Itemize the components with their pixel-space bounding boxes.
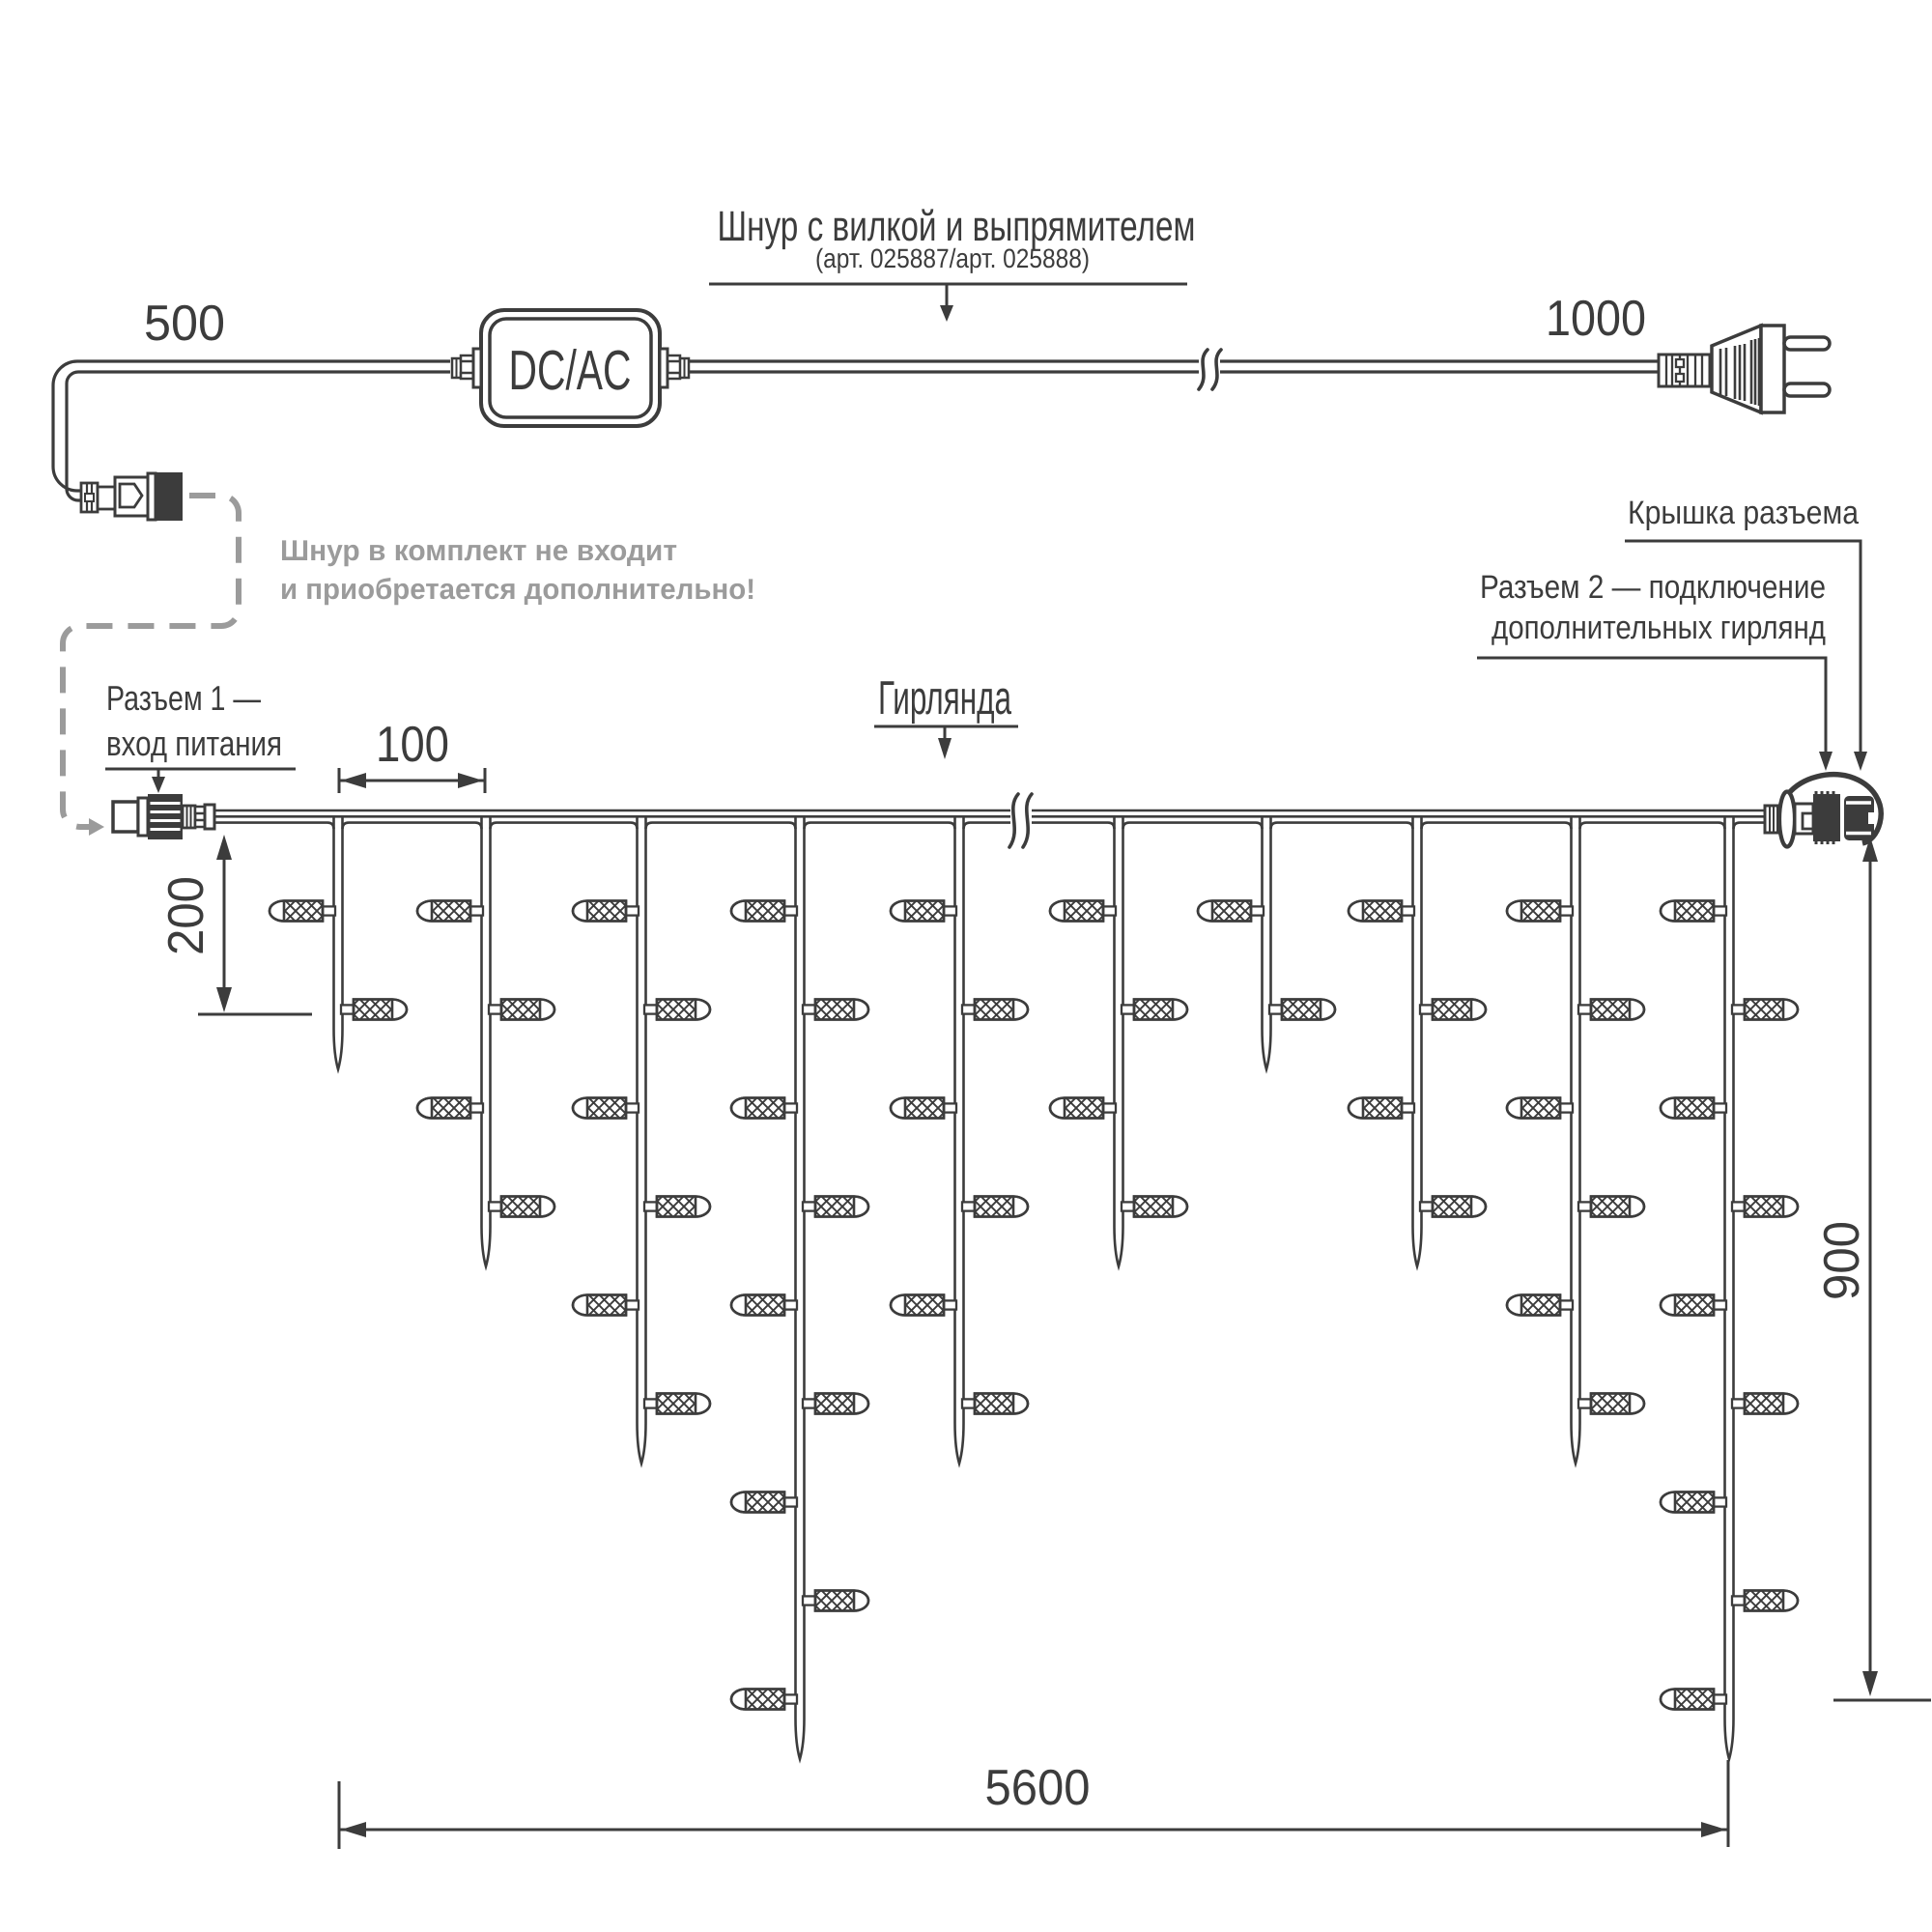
svg-text:200: 200 xyxy=(158,876,214,955)
svg-text:5600: 5600 xyxy=(985,1760,1091,1816)
svg-text:DC/AC: DC/AC xyxy=(509,339,632,402)
svg-text:вход питания: вход питания xyxy=(106,724,282,763)
svg-text:Разъем 1 —: Разъем 1 — xyxy=(106,678,261,718)
svg-text:Гирлянда: Гирлянда xyxy=(878,672,1011,724)
svg-text:и приобретается дополнительно!: и приобретается дополнительно! xyxy=(280,574,755,606)
svg-text:1000: 1000 xyxy=(1546,291,1646,347)
svg-text:Разъем 2 — подключение: Разъем 2 — подключение xyxy=(1480,569,1826,606)
svg-text:Крышка разъема: Крышка разъема xyxy=(1628,495,1859,531)
svg-text:дополнительных гирлянд: дополнительных гирлянд xyxy=(1492,610,1826,646)
svg-text:Шнур в комплект не входит: Шнур в комплект не входит xyxy=(280,535,677,567)
svg-text:500: 500 xyxy=(144,296,225,352)
svg-text:100: 100 xyxy=(376,717,449,773)
svg-text:(арт. 025887/арт. 025888): (арт. 025887/арт. 025888) xyxy=(815,243,1090,273)
svg-text:900: 900 xyxy=(1814,1221,1870,1300)
